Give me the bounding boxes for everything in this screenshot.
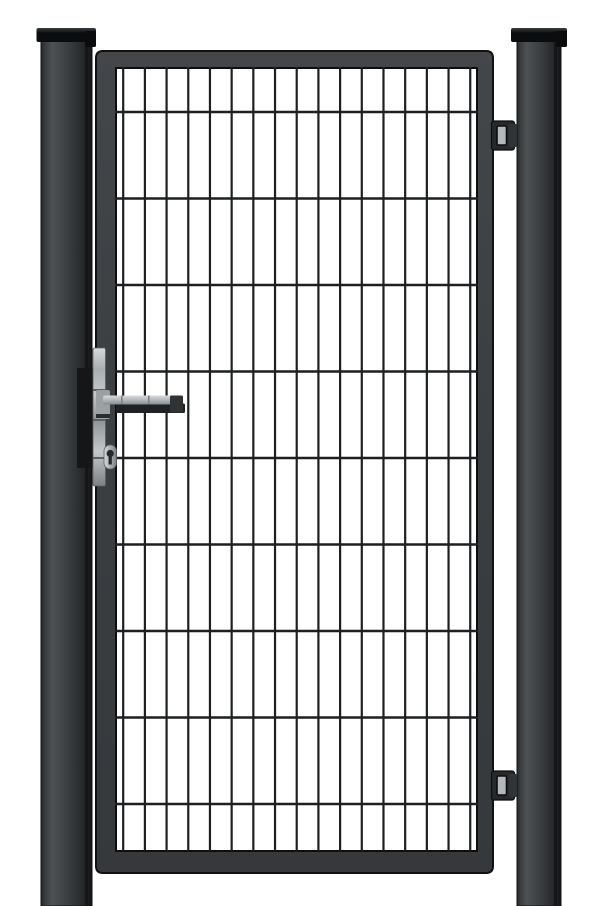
product-image — [0, 0, 600, 906]
rosette-shadow — [96, 414, 110, 418]
hinge-bottom — [492, 771, 518, 800]
strike-keeper-plate — [77, 368, 93, 468]
handle-seam — [148, 396, 150, 405]
left-post-body — [41, 38, 92, 906]
handle-end-cap — [170, 396, 183, 413]
gate-scene — [0, 0, 600, 906]
handle-seam — [121, 396, 123, 405]
left-post-cap-lip — [85, 31, 96, 47]
right-post-cap-lip — [556, 31, 567, 47]
right-post-edge-streak — [554, 38, 557, 906]
keyhole-slot — [109, 454, 112, 465]
hinge-top — [492, 121, 518, 150]
left-post-edge-streak — [85, 38, 88, 906]
faceplate-seam — [93, 419, 106, 421]
right-post — [511, 28, 567, 906]
